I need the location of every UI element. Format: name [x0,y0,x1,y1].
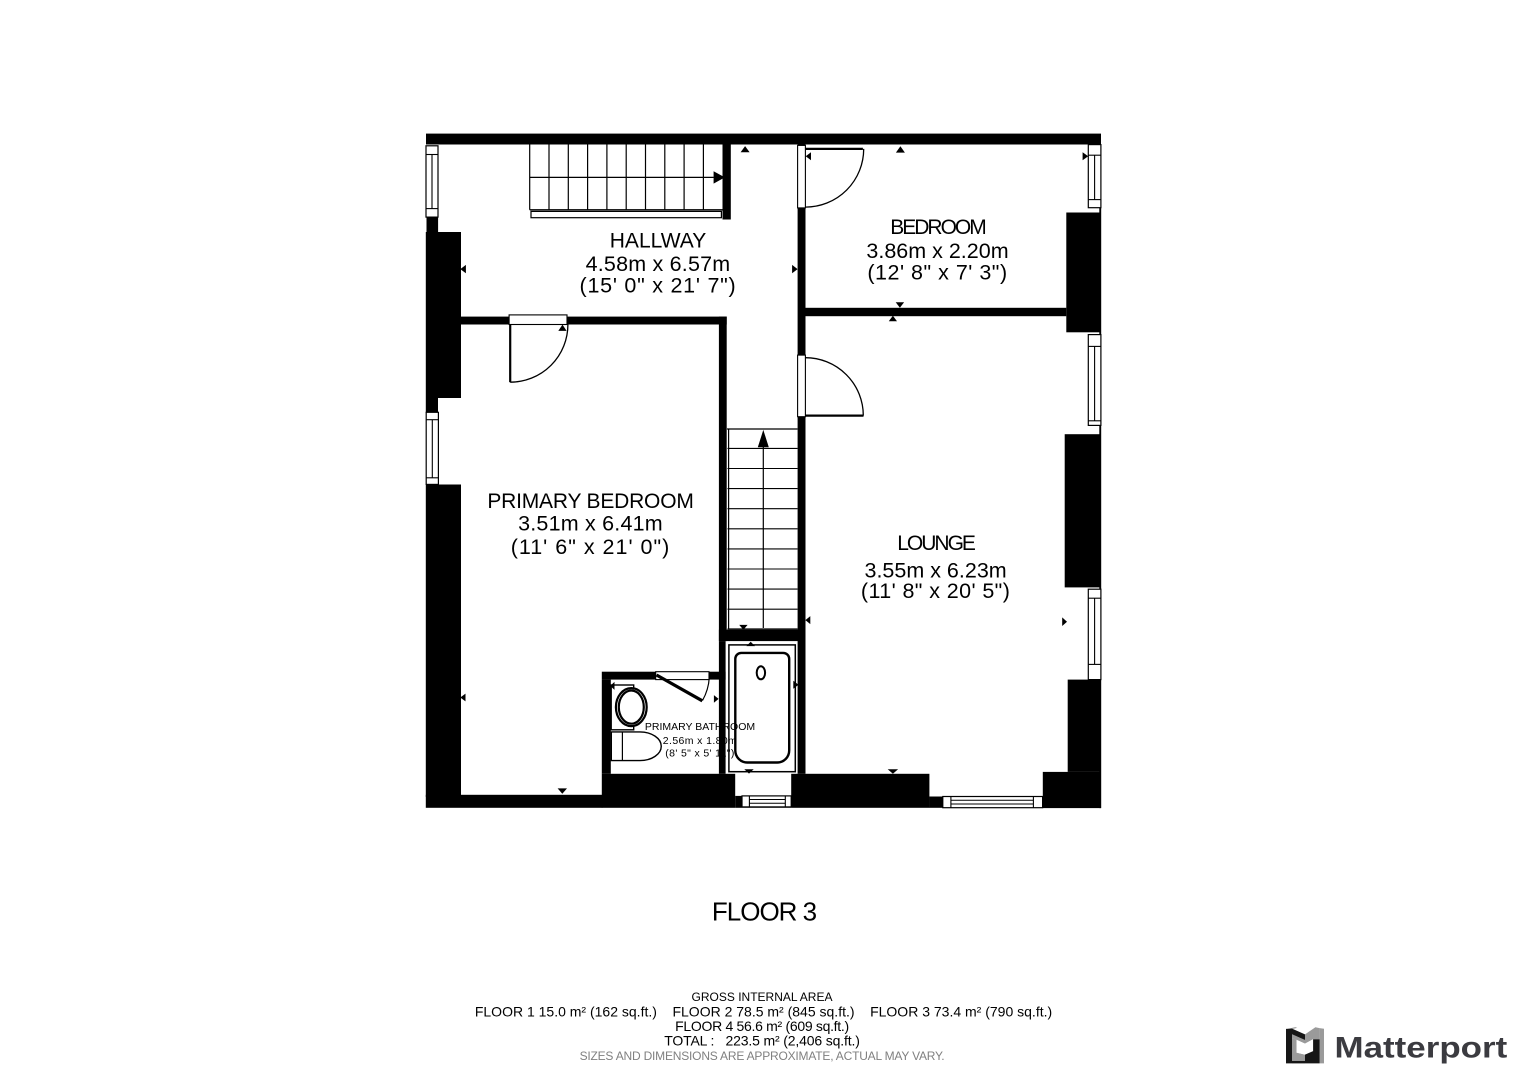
svg-text:4.58m x 6.57m: 4.58m x 6.57m [586,252,731,276]
svg-text:PRIMARY BEDROOM: PRIMARY BEDROOM [487,490,693,513]
svg-text:LOUNGE: LOUNGE [897,532,976,555]
svg-text:TOTAL : 223.5 m² (2,406 sq.f: TOTAL : 223.5 m² (2,406 sq.ft.) [664,1033,860,1049]
svg-text:(15' 0" x 21' 7"): (15' 0" x 21' 7") [580,274,737,298]
svg-text:(8' 5" x 5' 11"): (8' 5" x 5' 11") [665,748,734,760]
svg-text:Matterport: Matterport [1335,1031,1508,1064]
svg-text:(11' 6" x 21' 0"): (11' 6" x 21' 0") [511,535,671,559]
svg-text:3.51m x 6.41m: 3.51m x 6.41m [518,512,663,536]
svg-text:2.56m x 1.80m: 2.56m x 1.80m [663,735,737,747]
svg-text:BEDROOM: BEDROOM [890,216,985,239]
svg-text:SIZES AND DIMENSIONS ARE APPRO: SIZES AND DIMENSIONS ARE APPROXIMATE, AC… [580,1049,945,1063]
svg-text:HALLWAY: HALLWAY [610,230,706,253]
svg-text:(12' 8" x 7' 3"): (12' 8" x 7' 3") [867,261,1007,285]
svg-text:GROSS INTERNAL AREA: GROSS INTERNAL AREA [692,990,833,1004]
svg-text:FLOOR 3: FLOOR 3 [712,897,817,927]
svg-text:PRIMARY BATHROOM: PRIMARY BATHROOM [645,721,755,733]
svg-text:3.86m x 2.20m: 3.86m x 2.20m [866,239,1008,263]
svg-text:(11' 8" x 20' 5"): (11' 8" x 20' 5") [861,579,1010,603]
